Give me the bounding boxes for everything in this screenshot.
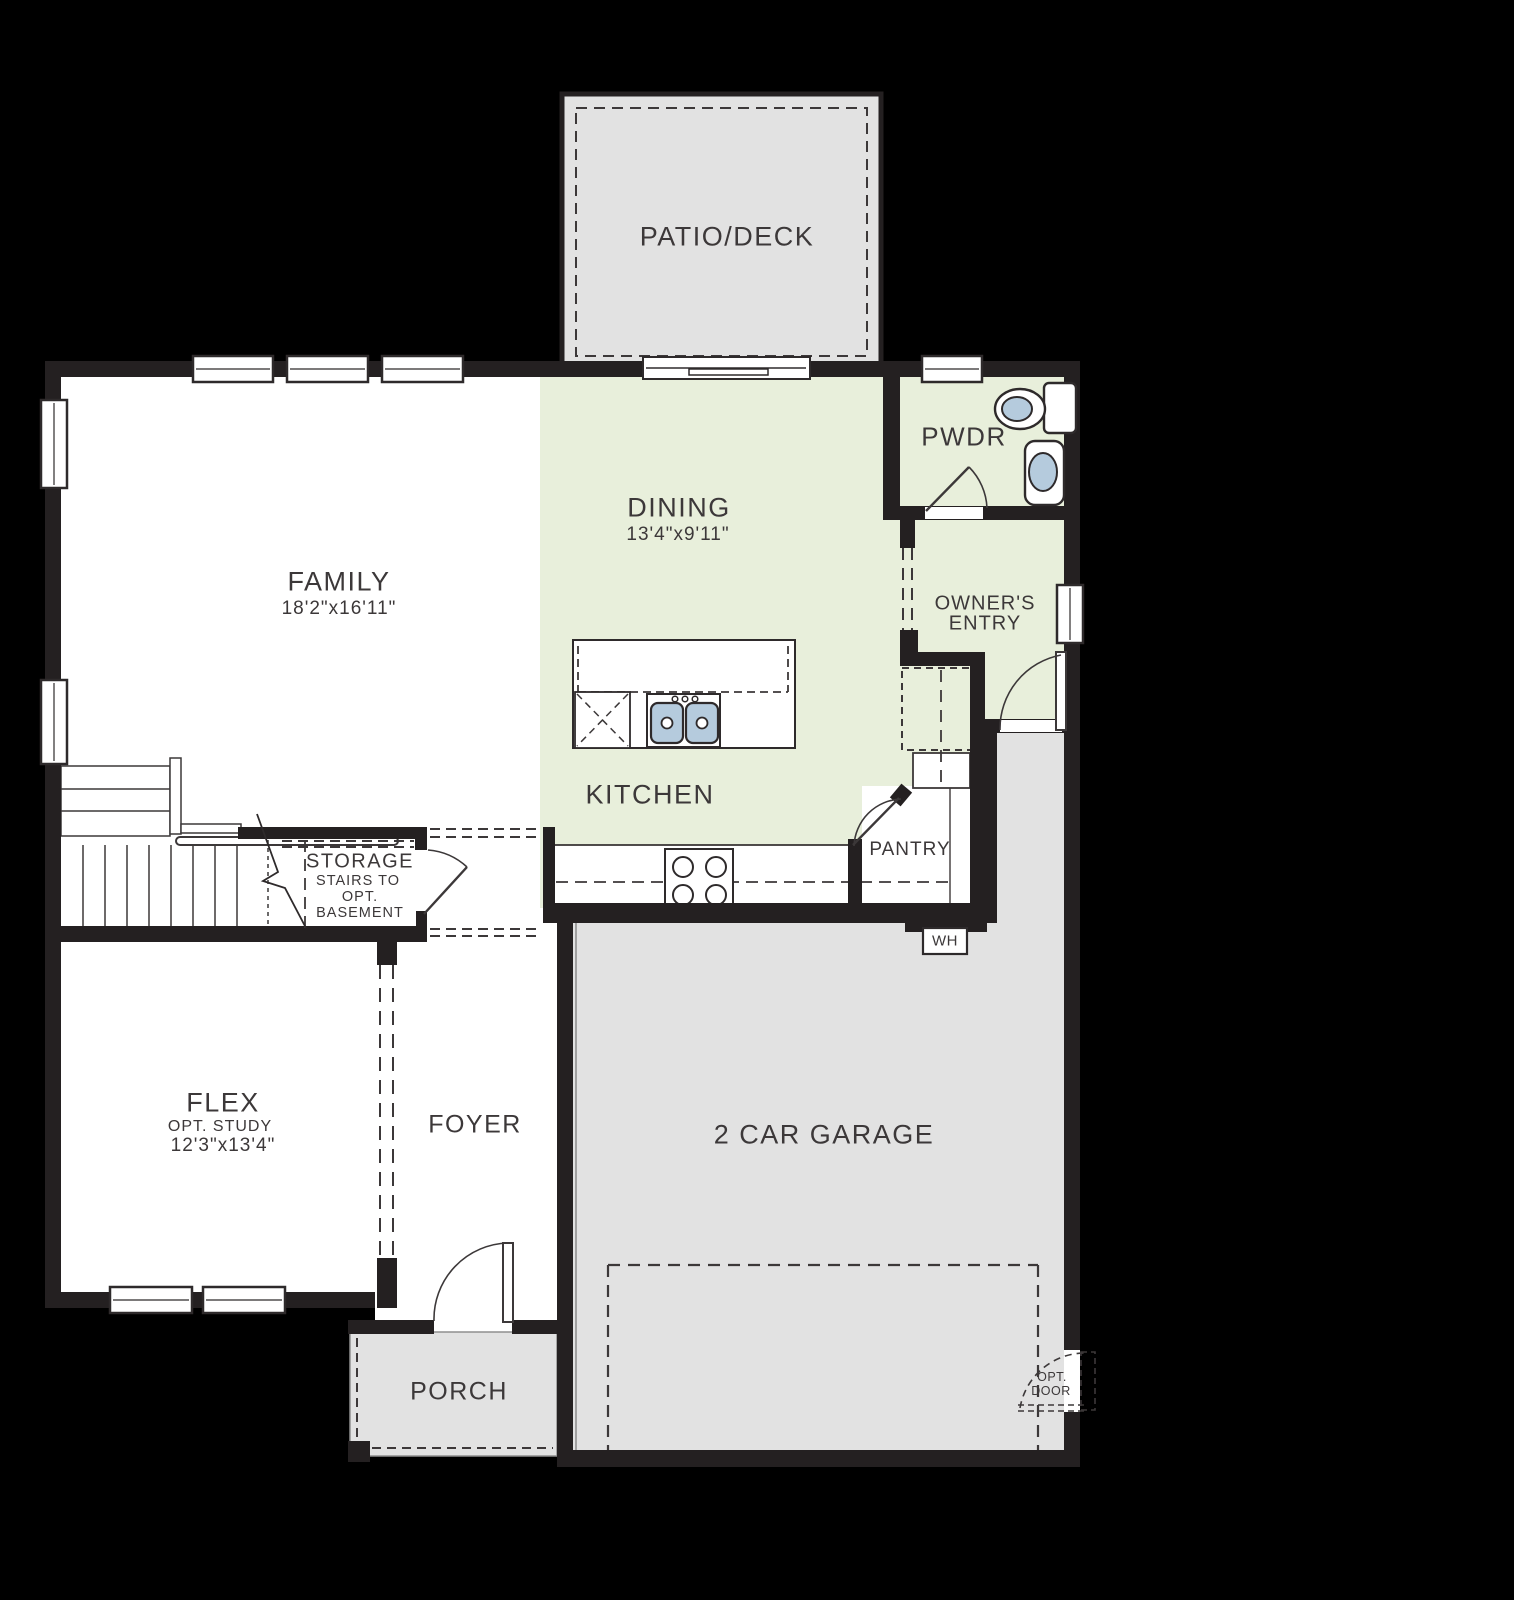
flex-sub: OPT. STUDY (168, 1118, 272, 1136)
bathroom-sink (1025, 441, 1064, 505)
dishwasher (575, 692, 630, 748)
flex-dims: 12'3"x13'4" (171, 1135, 276, 1157)
family-dims: 18'2"x16'11" (282, 598, 397, 620)
kitchen-island (573, 640, 795, 748)
dining-label: DINING (627, 493, 731, 524)
kitchen-label: KITCHEN (585, 780, 714, 811)
pantry-label: PANTRY (869, 839, 950, 861)
kitchen-sink (647, 694, 720, 747)
owners-entry-label-line2: ENTRY (949, 613, 1021, 636)
dining-dims: 13'4"x9'11" (626, 524, 729, 546)
opt-door-label-line2: DOOR (1031, 1384, 1071, 1398)
storage-label-line3: OPT. (342, 889, 378, 905)
flex-label: FLEX (186, 1088, 260, 1119)
storage-label-line1: STORAGE (306, 851, 414, 874)
storage-label-line4: BASEMENT (316, 905, 404, 921)
pwdr-label: PWDR (921, 422, 1006, 453)
garage-label: 2 CAR GARAGE (714, 1120, 935, 1151)
porch-label: PORCH (410, 1378, 508, 1407)
opt-door-label-line1: OPT. (1037, 1370, 1067, 1384)
water-heater-label: WH (932, 933, 958, 950)
floor-plan: PATIO/DECK FAMILY 18'2"x16'11" DINING 13… (0, 0, 1514, 1600)
family-label: FAMILY (287, 567, 390, 598)
patio-label: PATIO/DECK (640, 222, 815, 253)
storage-label-line2: STAIRS TO (316, 873, 400, 889)
sliding-patio-door (643, 357, 810, 379)
foyer-label: FOYER (428, 1111, 522, 1140)
